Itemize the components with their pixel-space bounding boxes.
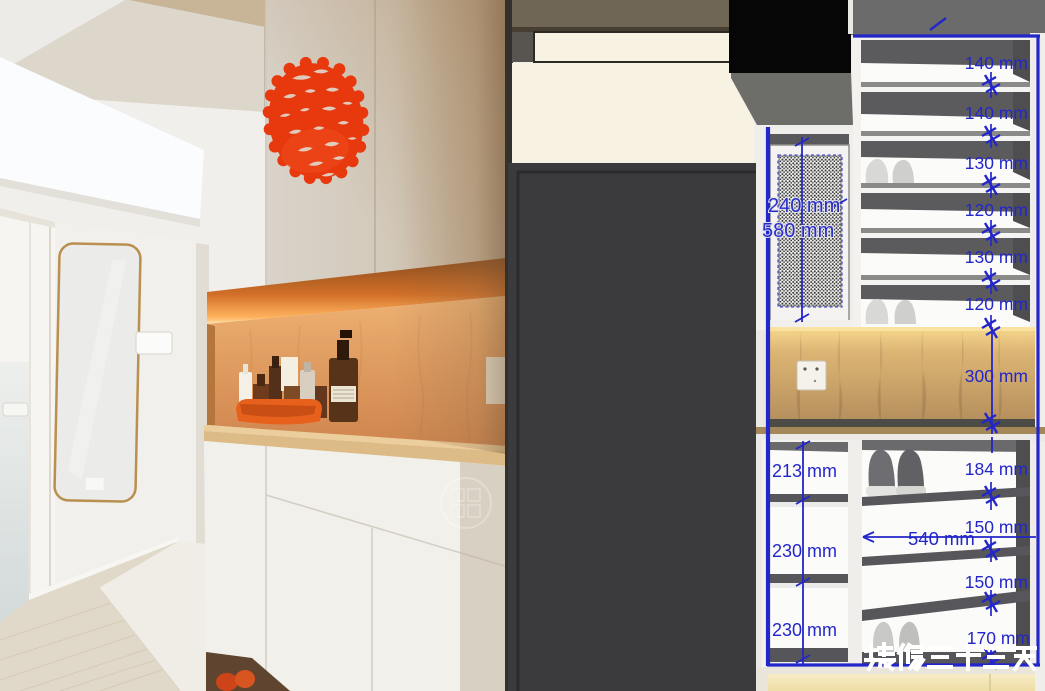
svg-text:130 mm: 130 mm (965, 247, 1028, 267)
svg-text:120 mm: 120 mm (965, 294, 1028, 314)
svg-text:230 mm: 230 mm (772, 620, 837, 640)
svg-text:240 mm: 240 mm (768, 195, 840, 217)
svg-text:130 mm: 130 mm (965, 153, 1028, 173)
svg-text:140 mm: 140 mm (965, 53, 1028, 73)
svg-text:140 mm: 140 mm (965, 103, 1028, 123)
svg-text:540 mm: 540 mm (908, 528, 975, 549)
svg-text:300 mm: 300 mm (965, 366, 1028, 386)
svg-text:184 mm: 184 mm (965, 459, 1028, 479)
svg-text:230 mm: 230 mm (772, 541, 837, 561)
svg-text:120 mm: 120 mm (965, 200, 1028, 220)
svg-text:213 mm: 213 mm (772, 461, 837, 481)
svg-text:150 mm: 150 mm (965, 572, 1028, 592)
svg-text:580 mm: 580 mm (762, 220, 834, 242)
svg-text:170 mm: 170 mm (967, 628, 1030, 648)
